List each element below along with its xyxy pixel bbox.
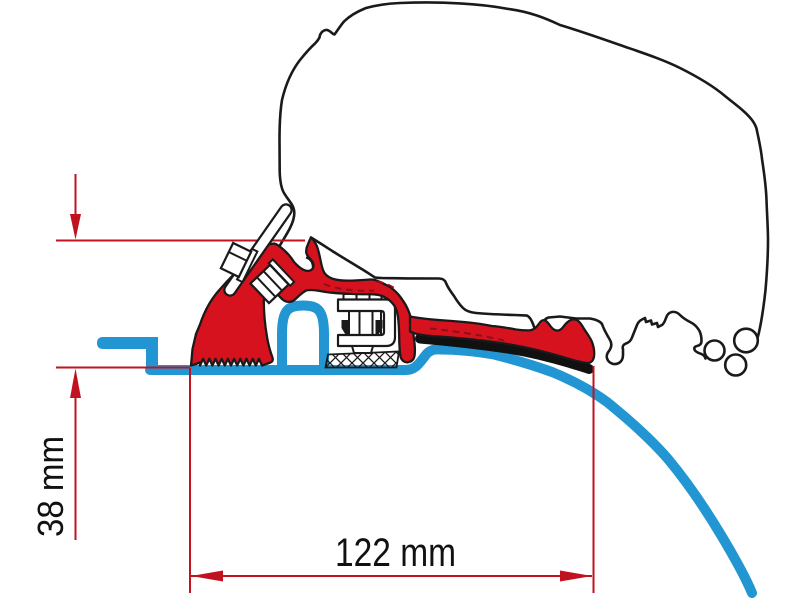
svg-text:122 mm: 122 mm	[335, 531, 456, 575]
svg-text:38 mm: 38 mm	[30, 436, 71, 537]
